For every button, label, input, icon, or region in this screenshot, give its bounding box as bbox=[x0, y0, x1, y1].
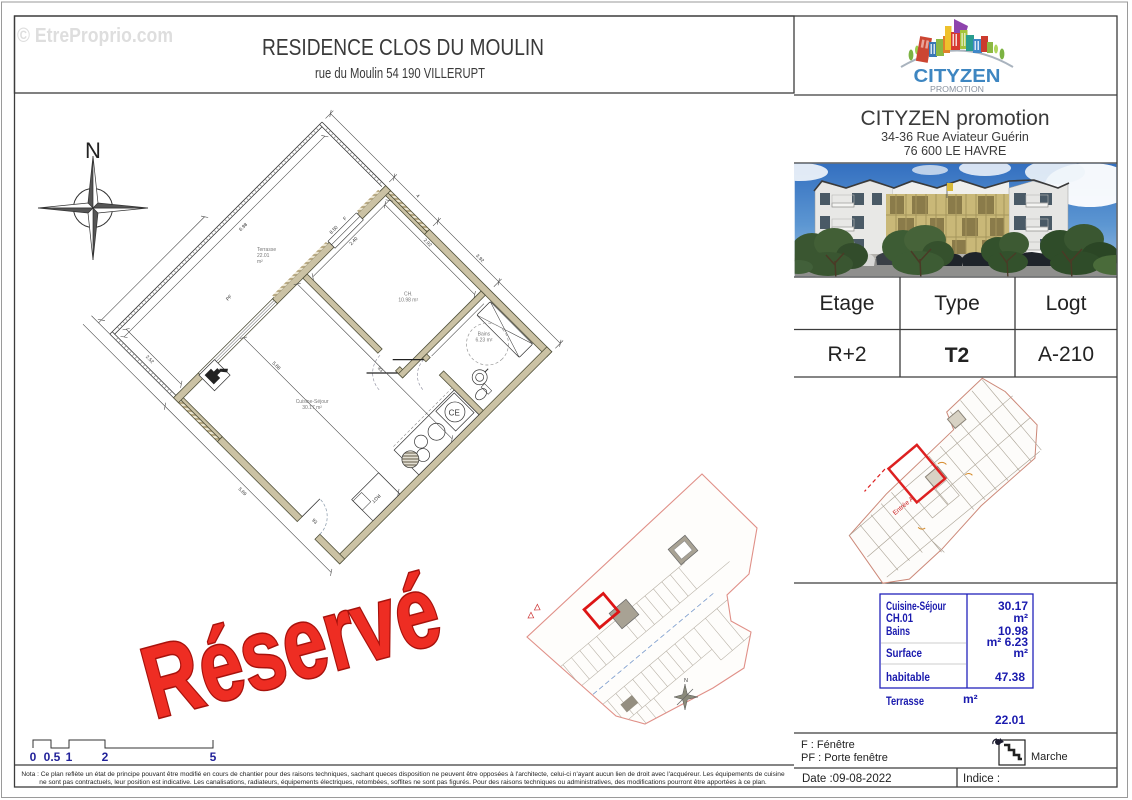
svg-text:F : Fénêtre: F : Fénêtre bbox=[801, 739, 855, 751]
svg-text:PF : Porte fenêtre: PF : Porte fenêtre bbox=[801, 752, 888, 764]
svg-text:Marche: Marche bbox=[1031, 751, 1068, 763]
svg-text:5.68: 5.68 bbox=[271, 361, 282, 372]
svg-text:rue du Moulin 54 190 VILLERUPT: rue du Moulin 54 190 VILLERUPT bbox=[315, 66, 485, 82]
svg-text:47.38: 47.38 bbox=[995, 670, 1025, 684]
svg-text:Logt: Logt bbox=[1046, 292, 1087, 315]
svg-text:CITYZEN: CITYZEN bbox=[914, 66, 1001, 86]
svg-text:1: 1 bbox=[66, 750, 73, 764]
svg-text:Nota : Ce plan reflète un état: Nota : Ce plan reflète un état de princi… bbox=[21, 771, 785, 778]
svg-text:N: N bbox=[684, 678, 688, 684]
svg-text:CH.01: CH.01 bbox=[886, 611, 913, 625]
svg-text:0.5: 0.5 bbox=[44, 750, 61, 764]
svg-text:2.52: 2.52 bbox=[144, 354, 155, 365]
svg-text:m²: m² bbox=[1013, 611, 1028, 625]
svg-text:R+2: R+2 bbox=[827, 343, 866, 366]
svg-text:Bains: Bains bbox=[886, 624, 910, 638]
svg-text:PROMOTION: PROMOTION bbox=[930, 85, 984, 94]
svg-text:6.23 m²: 6.23 m² bbox=[475, 338, 492, 344]
svg-text:T2: T2 bbox=[945, 344, 970, 367]
svg-text:3.92: 3.92 bbox=[474, 253, 485, 264]
svg-text:A-210: A-210 bbox=[1038, 343, 1094, 366]
svg-text:34-36 Rue Aviateur Guérin: 34-36 Rue Aviateur Guérin bbox=[881, 130, 1029, 144]
svg-text:2: 2 bbox=[102, 750, 109, 764]
svg-text:Indice :: Indice : bbox=[963, 773, 1000, 785]
svg-text:Type: Type bbox=[934, 292, 980, 315]
svg-text:m²: m² bbox=[1013, 646, 1028, 660]
svg-text:CE: CE bbox=[449, 409, 460, 418]
svg-text:Réservé: Réservé bbox=[131, 553, 452, 741]
svg-text:m²: m² bbox=[257, 259, 263, 265]
svg-text:93: 93 bbox=[310, 518, 318, 526]
svg-text:RESIDENCE CLOS DU MOULIN: RESIDENCE CLOS DU MOULIN bbox=[262, 34, 544, 60]
svg-text:22.01: 22.01 bbox=[995, 713, 1025, 727]
svg-text:5.69: 5.69 bbox=[237, 486, 248, 497]
svg-text:PF: PF bbox=[225, 294, 234, 303]
svg-text:0: 0 bbox=[30, 750, 37, 764]
svg-text:m²: m² bbox=[963, 692, 978, 706]
svg-text:habitable: habitable bbox=[886, 670, 930, 684]
svg-text:CITYZEN promotion: CITYZEN promotion bbox=[860, 107, 1049, 130]
svg-text:6.98: 6.98 bbox=[238, 222, 249, 233]
svg-text:F: F bbox=[342, 216, 348, 222]
svg-text:© EtreProprio.com: © EtreProprio.com bbox=[17, 25, 173, 47]
svg-text:76 600 LE HAVRE: 76 600 LE HAVRE bbox=[904, 144, 1007, 158]
svg-text:Etage: Etage bbox=[820, 292, 875, 315]
svg-text:ne sont pas contractuels, leur: ne sont pas contractuels, leur position … bbox=[39, 779, 767, 786]
svg-text:Terrasse: Terrasse bbox=[886, 694, 924, 708]
svg-text:Surface: Surface bbox=[886, 646, 922, 660]
svg-text:10.98 m²: 10.98 m² bbox=[398, 297, 418, 303]
svg-text:2.40: 2.40 bbox=[348, 236, 359, 247]
svg-text:5: 5 bbox=[210, 750, 217, 764]
svg-text:Date :09-08-2022: Date :09-08-2022 bbox=[802, 773, 892, 785]
svg-text:30.17 m²: 30.17 m² bbox=[302, 405, 322, 411]
